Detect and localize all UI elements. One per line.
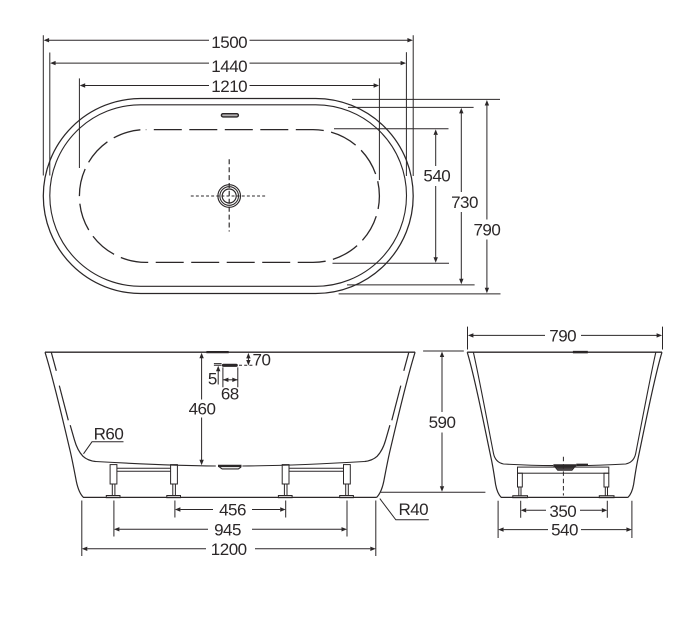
svg-text:460: 460 — [189, 400, 216, 419]
svg-text:790: 790 — [473, 221, 500, 240]
svg-text:5: 5 — [208, 370, 217, 389]
svg-text:R40: R40 — [398, 500, 428, 519]
svg-text:1440: 1440 — [211, 57, 247, 76]
svg-text:730: 730 — [451, 193, 478, 212]
svg-text:1200: 1200 — [211, 540, 247, 559]
svg-text:945: 945 — [214, 521, 241, 540]
svg-text:590: 590 — [429, 413, 456, 432]
svg-text:70: 70 — [253, 351, 271, 370]
svg-text:790: 790 — [549, 326, 576, 345]
svg-text:540: 540 — [423, 167, 450, 186]
svg-text:456: 456 — [219, 501, 246, 520]
svg-text:68: 68 — [221, 384, 239, 403]
svg-text:350: 350 — [549, 502, 576, 521]
svg-text:540: 540 — [551, 521, 578, 540]
svg-text:R60: R60 — [94, 425, 124, 444]
svg-text:1500: 1500 — [211, 33, 247, 52]
svg-text:1210: 1210 — [211, 77, 247, 96]
